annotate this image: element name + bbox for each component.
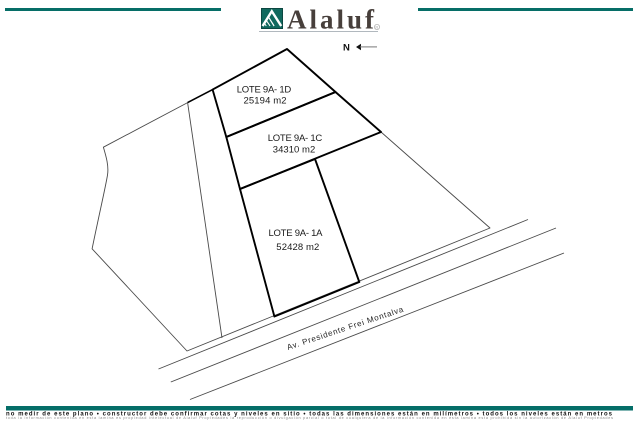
svg-text:LOTE 9A- 1A: LOTE 9A- 1A — [269, 228, 324, 239]
svg-text:52428 m2: 52428 m2 — [276, 242, 319, 253]
svg-text:LOTE 9A- 1C: LOTE 9A- 1C — [268, 133, 323, 144]
svg-text:LOTE 9A- 1D: LOTE 9A- 1D — [237, 85, 292, 96]
svg-text:Alaluf: Alaluf — [287, 5, 375, 35]
svg-text:N: N — [343, 43, 350, 54]
svg-text:34310 m2: 34310 m2 — [273, 144, 316, 155]
svg-text:toda la información contenida: toda la información contenida en esta la… — [6, 416, 613, 420]
svg-text:25194 m2: 25194 m2 — [244, 96, 287, 107]
svg-text:R: R — [375, 25, 378, 30]
